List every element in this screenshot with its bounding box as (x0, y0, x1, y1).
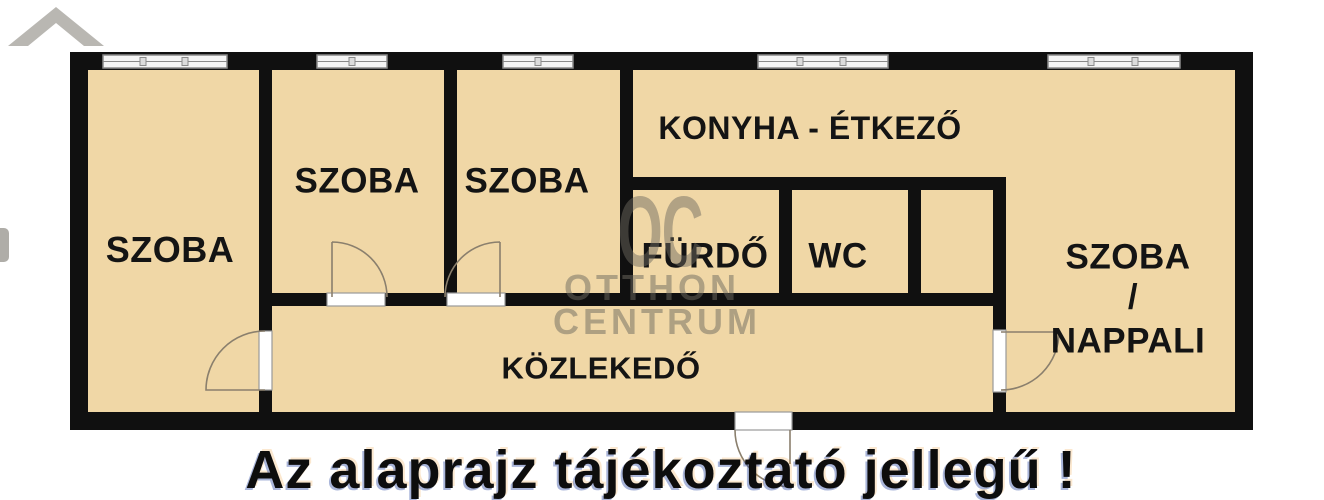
threshold-nappali (993, 330, 1006, 392)
room-label-szoba-left: SZOBA (106, 232, 235, 268)
wall-szoba2-szoba3 (444, 70, 457, 306)
window-szoba-left (103, 55, 227, 68)
room-label-szoba3: SZOBA (465, 164, 590, 199)
floorplan-image: SZOBA SZOBA SZOBA KONYHA - ÉTKEZŐ FÜRDŐ … (0, 0, 1324, 500)
room-label-nappali-3: NAPPALI (1051, 324, 1206, 359)
wall-wc-pantry (908, 177, 921, 306)
threshold-entrance (735, 412, 792, 430)
room-label-wc: WC (808, 239, 867, 274)
room-label-szoba2: SZOBA (295, 164, 420, 199)
threshold-szoba3 (447, 293, 505, 306)
wall-furdo-top (620, 177, 1006, 190)
room-label-nappali-2: / (1128, 280, 1138, 315)
room-label-furdo: FÜRDŐ (642, 239, 769, 274)
room-label-kozlekedo: KÖZLEKEDŐ (501, 353, 700, 384)
window-nappali (1048, 55, 1180, 68)
window-konyha (758, 55, 888, 68)
window-szoba2 (317, 55, 387, 68)
window-szoba3 (503, 55, 573, 68)
wall-furdo-wc (779, 177, 792, 306)
room-label-nappali-1: SZOBA (1066, 240, 1191, 275)
threshold-szoba2 (327, 293, 385, 306)
threshold-szoba-left (259, 331, 272, 390)
disclaimer-caption: Az alaprajz tájékoztató jellegű ! (245, 439, 1076, 500)
room-label-konyha: KONYHA - ÉTKEZŐ (658, 112, 961, 144)
